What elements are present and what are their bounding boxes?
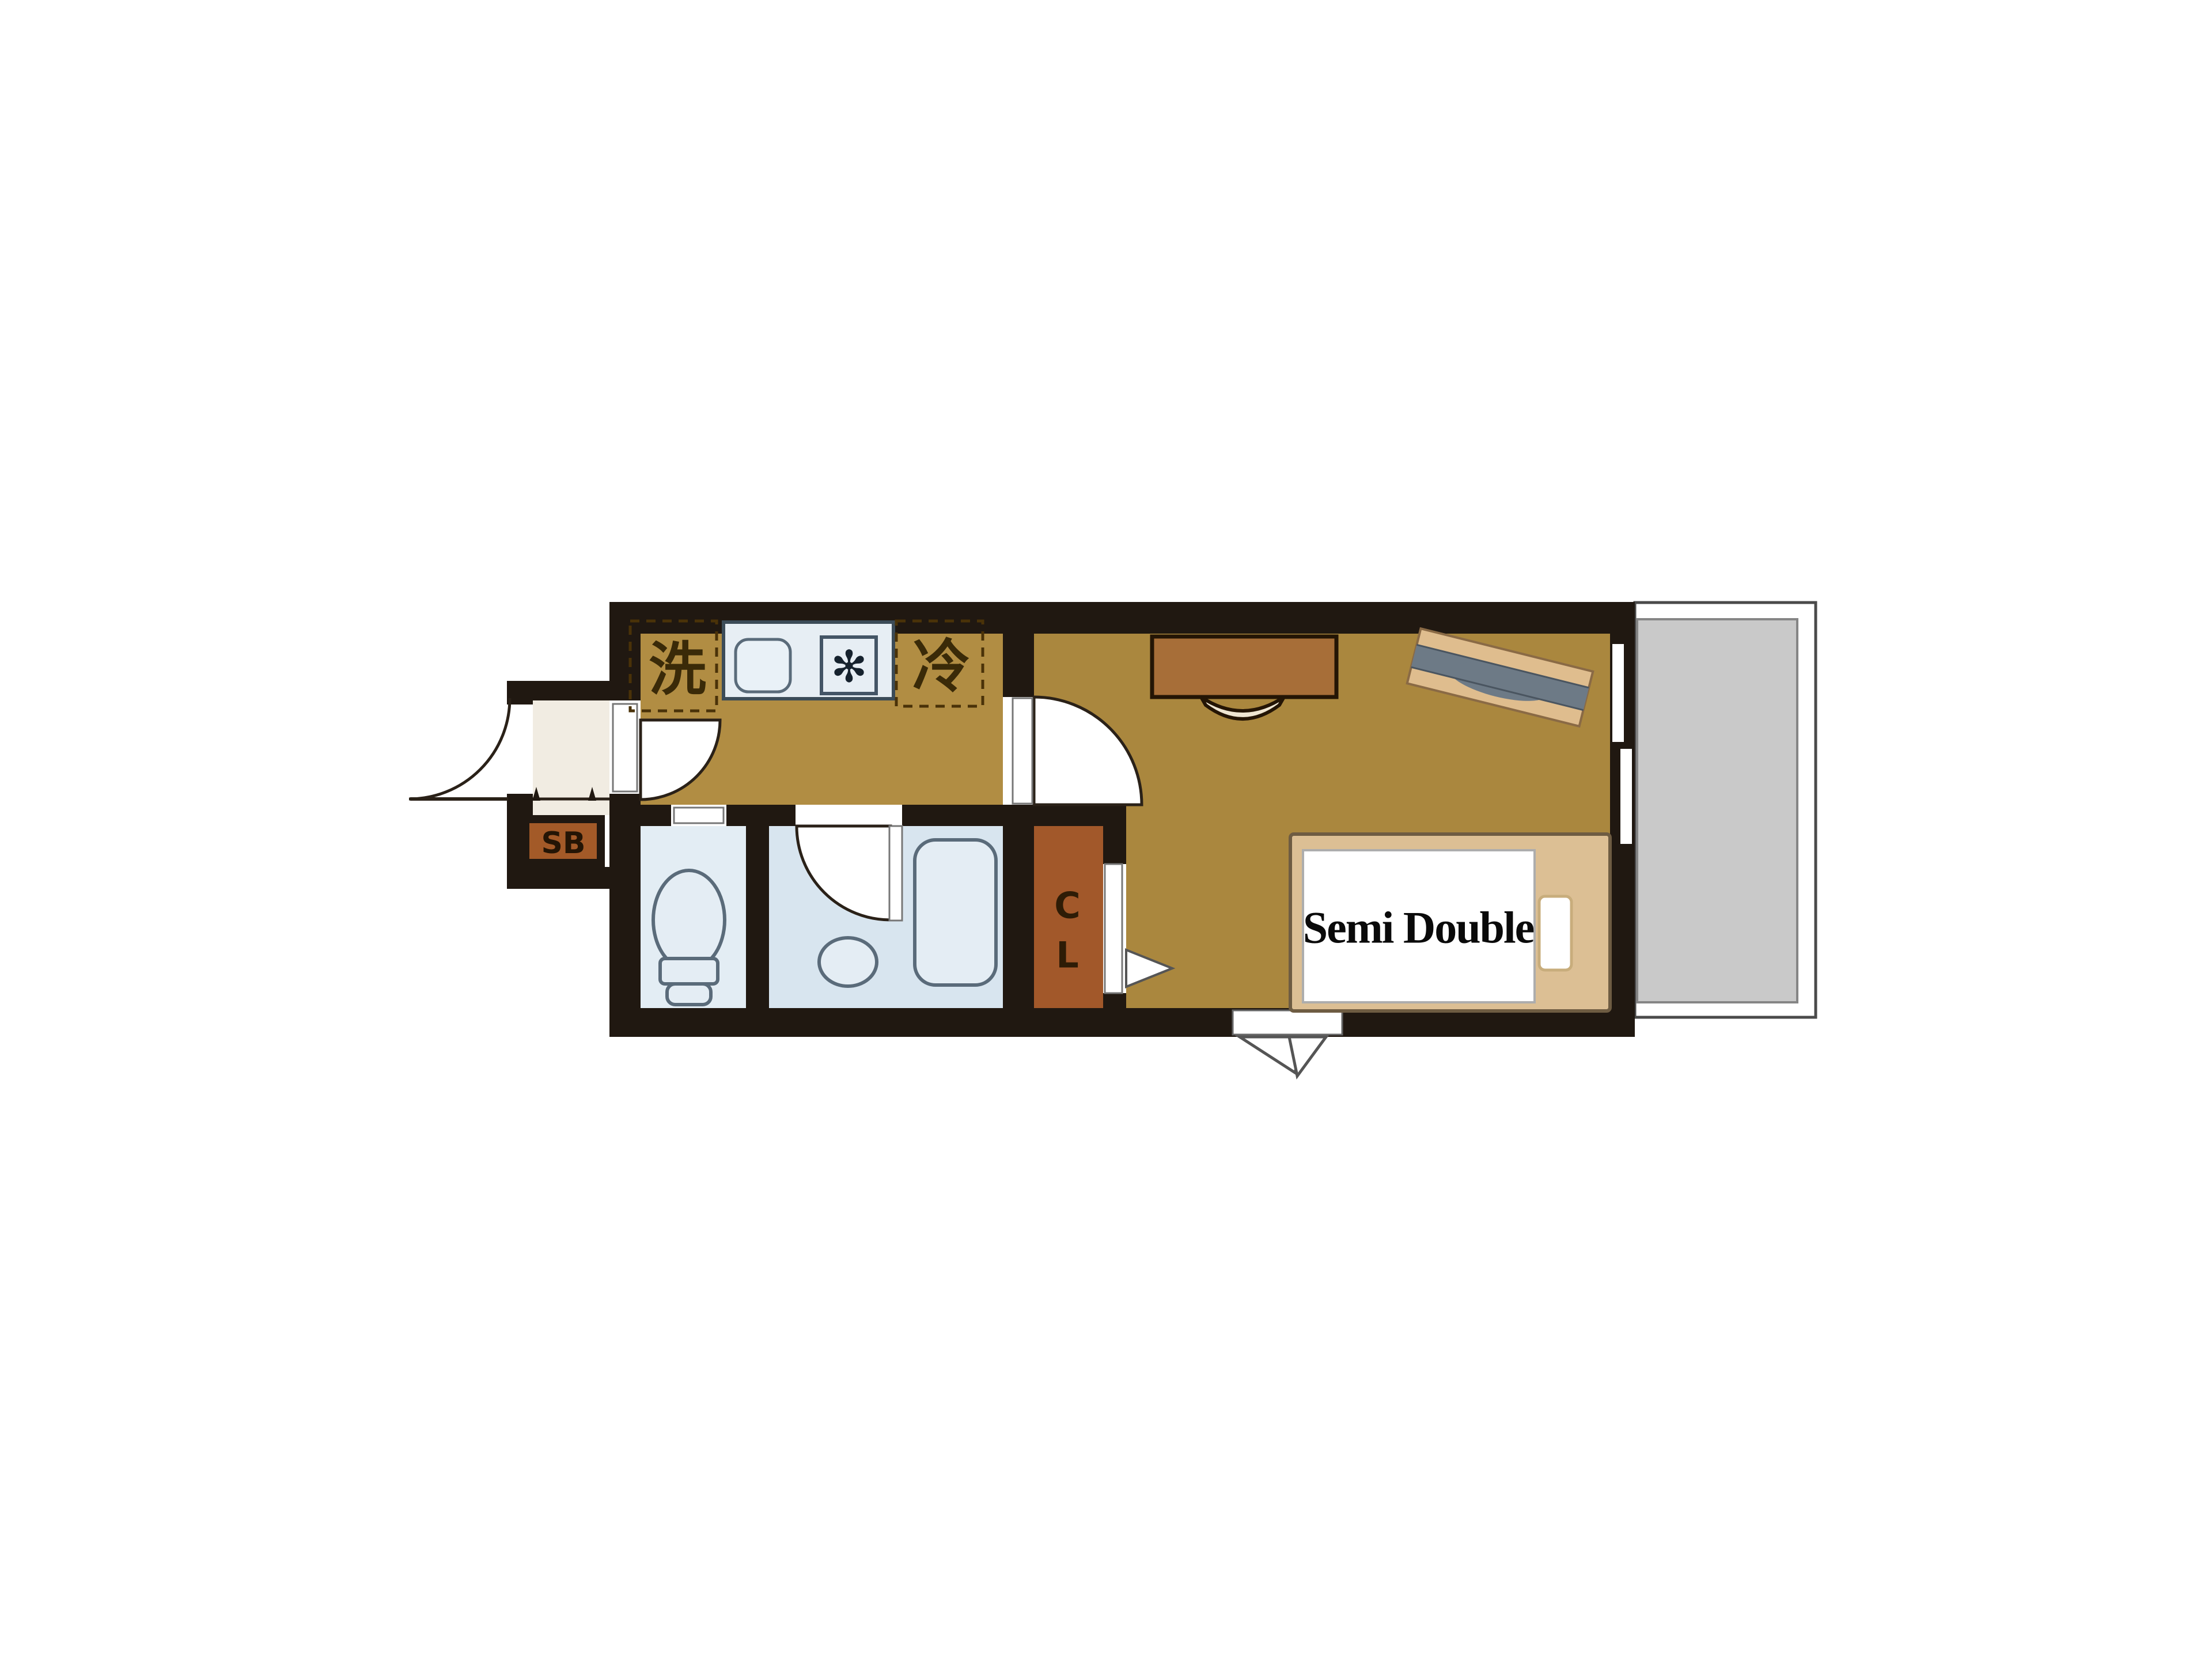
- shoebox-label: SB: [541, 826, 585, 861]
- balcony-deck: [1637, 619, 1797, 1002]
- washer-label: 洗: [649, 636, 706, 703]
- wall-left-upper: [609, 602, 641, 700]
- closet-label-c: C: [1054, 885, 1081, 927]
- desk: [1152, 637, 1336, 697]
- closet-label-l: L: [1056, 934, 1079, 976]
- wall-hall-closet: [1003, 805, 1034, 1008]
- wall-left-lower: [609, 794, 641, 1037]
- kitchen-door-leaf: [613, 704, 637, 791]
- floorplan-drawing: SB 洗 ✻ 冷 C L: [0, 0, 2212, 1659]
- toilet-door-leaf: [674, 808, 724, 823]
- bath-basin: [819, 938, 877, 986]
- toilet-tank: [660, 959, 718, 984]
- kitchen-sink: [736, 639, 790, 692]
- closet-door-leaf: [1105, 864, 1122, 993]
- entrance-door-arc: [409, 698, 510, 799]
- bath-door-opening: [796, 805, 902, 826]
- bath-door-leaf: [889, 826, 902, 921]
- bottom-window-swing-triangle-2: [1289, 1037, 1326, 1076]
- bed: Semi Double: [1290, 834, 1610, 1011]
- stove-burner-icon: ✻: [831, 641, 868, 692]
- balcony-window-pane-2: [1620, 749, 1632, 844]
- balcony-window-pane-1: [1612, 644, 1624, 742]
- bottom-window: [1233, 1010, 1342, 1035]
- balcony: [1635, 603, 1816, 1017]
- bathtub: [915, 840, 996, 985]
- wall-hall-upper: [1003, 634, 1034, 697]
- main-door-leaf: [1013, 698, 1032, 804]
- bed-size-label: Semi Double: [1303, 903, 1534, 953]
- toilet-bowl: [653, 870, 725, 969]
- wall-entrance-bottom: [507, 867, 609, 889]
- floorplan-canvas: SB 洗 ✻ 冷 C L: [0, 0, 2212, 1659]
- toilet-fixture: [653, 870, 725, 1005]
- bed-pillow: [1539, 896, 1571, 970]
- fridge-label: 冷: [912, 633, 970, 700]
- toilet-base: [667, 984, 711, 1005]
- wall-toilet-bath: [746, 826, 769, 1008]
